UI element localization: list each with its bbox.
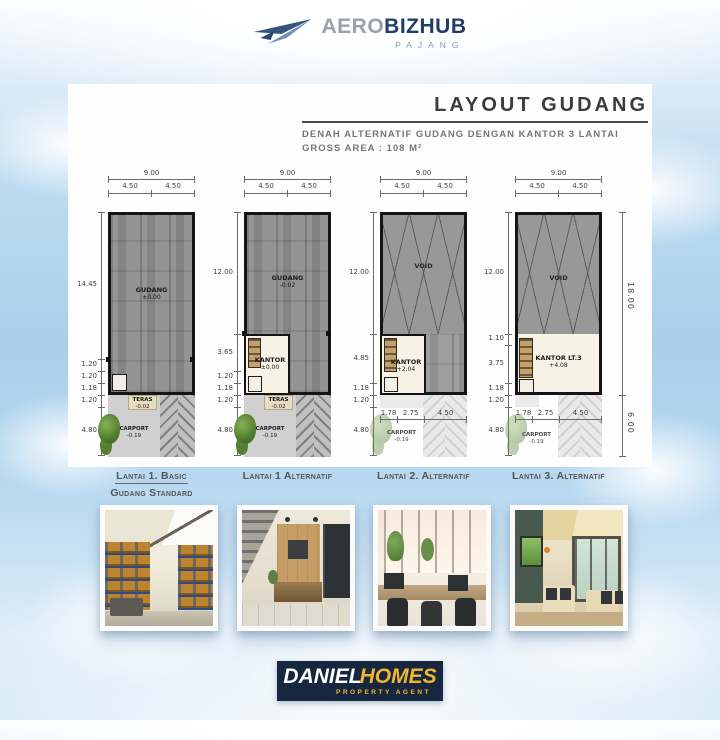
photo-office-room	[373, 505, 491, 631]
paper-plane-icon	[253, 17, 313, 49]
dim-label: 12.00	[207, 269, 233, 276]
room-label-kantor: KANTOR±0.00	[252, 356, 288, 372]
dim-label: 4.50	[424, 410, 467, 417]
photo-plant	[387, 531, 404, 561]
dim-label: 18.00	[626, 282, 634, 310]
dim-label: 2.75	[532, 410, 559, 417]
dim-label: 4.50	[244, 183, 288, 190]
driveway-hatch	[160, 395, 195, 457]
room-label-teras: TERAS-0.02	[128, 397, 157, 411]
dim-label: 2.75	[397, 410, 424, 417]
dim-label: 1.20	[71, 397, 97, 404]
dim-tick	[151, 190, 152, 197]
toilet	[112, 374, 127, 391]
brand-part1: AERO	[321, 15, 384, 38]
header-logo: AEROBIZHUB PAJANG	[253, 16, 466, 50]
photo-door	[323, 524, 350, 598]
dim-label: 4.80	[207, 427, 233, 434]
dim-tick	[98, 383, 105, 384]
dim-label: 6.00	[626, 412, 634, 434]
tree	[98, 414, 120, 444]
footer-brand-part1: DANIEL	[283, 665, 361, 688]
brand-subtitle: PAJANG	[321, 40, 466, 50]
caption-lantai-3-alternatif: Lantai 3. Alternatif	[493, 470, 624, 482]
carport-area	[515, 395, 539, 407]
photo-floor	[515, 612, 623, 626]
room-label-gudang: GUDANG±0.00	[108, 286, 195, 302]
photo-warehouse-interior	[100, 505, 218, 631]
column-marker	[326, 331, 331, 336]
dim-label: 4.50	[151, 183, 195, 190]
floorplan-lantai-1-basic: 9.00 4.50 4.50 14.45 1.20 1.20 1.18 1.20…	[85, 170, 225, 470]
dim-tick	[397, 416, 398, 423]
photo-monitor	[384, 573, 403, 589]
photo-floor	[242, 605, 350, 626]
dim-label: 4.80	[71, 427, 97, 434]
room-label-teras: TERAS-0.02	[264, 397, 293, 411]
toilet	[248, 376, 262, 392]
gudang-area	[108, 212, 195, 395]
title-underline	[302, 121, 648, 123]
footer-brand-part2: HOMES	[360, 665, 437, 688]
driveway-hatch	[423, 395, 467, 457]
dim-label: 1.20	[71, 361, 97, 368]
photo-plant	[268, 570, 278, 584]
dim-tick	[559, 416, 560, 423]
photo-desk	[110, 598, 142, 615]
dim-tick	[234, 334, 241, 335]
photo-beam	[146, 510, 213, 549]
subtitle-line1: DENAH ALTERNATIF GUDANG DENGAN KANTOR 3 …	[302, 129, 648, 140]
driveway-hatch	[558, 395, 602, 457]
room-label-carport: CARPORT-0.19	[380, 430, 423, 444]
dim-tick	[98, 395, 105, 396]
carport-area	[380, 395, 423, 408]
ground-level-ghost	[357, 170, 497, 470]
caption-lantai-1-alternatif: Lantai 1 Alternatif	[222, 470, 353, 482]
floorplan-lantai-2-alternatif: 9.00 4.50 4.50 12.00 4.85 1.18 1.20 4.80…	[357, 170, 497, 470]
dim-label: 4.50	[287, 183, 331, 190]
dim-line	[244, 179, 331, 180]
dim-line	[622, 212, 623, 457]
dim-label: 4.50	[108, 183, 152, 190]
dim-label: 4.50	[559, 410, 602, 417]
dim-tick	[424, 416, 425, 423]
dim-tick	[619, 395, 626, 396]
photo-desk	[274, 582, 322, 602]
dim-tick	[532, 416, 533, 423]
photo-shelf-right	[178, 545, 213, 610]
dim-label: 1.78	[380, 410, 397, 417]
room-label-gudang: GUDANG-0.02	[244, 274, 331, 290]
tree	[234, 414, 256, 444]
photo-painting	[520, 536, 542, 568]
dim-label: 9.00	[108, 170, 195, 177]
dim-tick	[98, 359, 105, 360]
dim-label: 1.20	[71, 373, 97, 380]
column-marker	[190, 357, 195, 362]
dim-tick	[98, 371, 105, 372]
driveway-hatch	[296, 395, 331, 457]
footer-tagline: PROPERTY AGENT	[277, 689, 443, 696]
dim-label: 14.45	[71, 281, 97, 288]
dim-tick	[234, 371, 241, 372]
dim-tick	[234, 395, 241, 396]
dim-line	[108, 179, 195, 180]
brand-name: AEROBIZHUB	[321, 16, 466, 37]
photo-tv	[288, 540, 307, 559]
floorplan-lantai-3-alternatif: 9.00 4.50 4.50 12.00 1.10 3.75 1.18 1.20…	[492, 170, 632, 470]
dim-label: 9.00	[244, 170, 331, 177]
photo-reception-lobby	[237, 505, 355, 631]
dim-tick	[98, 407, 105, 408]
caption-lantai-1-basic: Lantai 1. Basic Gudang Standard	[86, 470, 217, 499]
dim-label: 1.20	[207, 373, 233, 380]
photo-lounge-room	[510, 505, 628, 631]
page-title: LAYOUT GUDANG	[300, 94, 648, 117]
photo-cushion	[601, 591, 612, 604]
dim-label: 1.20	[207, 397, 233, 404]
dim-tick	[287, 190, 288, 197]
footer-logo: DANIELHOMES PROPERTY AGENT	[277, 661, 443, 701]
floorplan-lantai-1-alternatif: 9.00 4.50 4.50 12.00 3.65 1.20 1.18 1.20…	[221, 170, 361, 470]
dim-tick	[234, 407, 241, 408]
room-label-carport: CARPORT-0.19	[515, 432, 558, 446]
footer-brand-name: DANIELHOMES	[277, 666, 443, 687]
subtitle-line2: GROSS AREA : 108 M²	[302, 143, 648, 154]
photo-chair	[387, 598, 409, 626]
dim-tick	[234, 383, 241, 384]
dim-label: 3.65	[207, 349, 233, 356]
dim-label: 1.18	[207, 385, 233, 392]
caption-lantai-2-alternatif: Lantai 2. Alternatif	[358, 470, 489, 482]
photo-cushion	[546, 588, 557, 601]
dim-label: 1.78	[515, 410, 532, 417]
brand-part2: BIZHUB	[384, 15, 466, 38]
ground-level-ghost	[492, 170, 632, 470]
dim-label: 1.18	[71, 385, 97, 392]
column-marker	[106, 357, 111, 362]
